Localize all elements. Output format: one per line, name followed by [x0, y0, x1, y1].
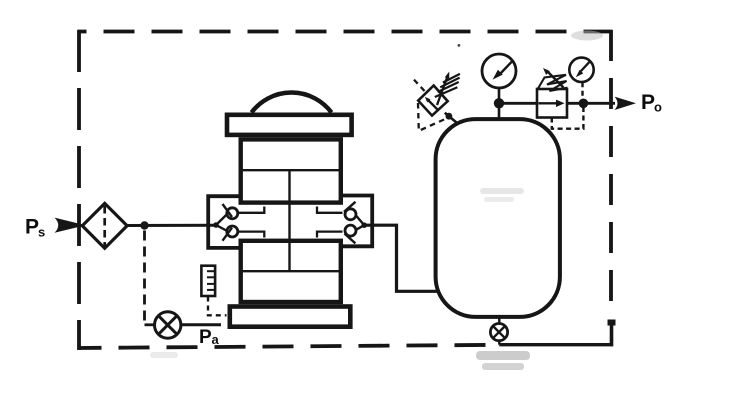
svg-text:P: P — [25, 216, 39, 239]
svg-text:P: P — [199, 327, 212, 348]
svg-text:P: P — [641, 91, 655, 114]
svg-text:a: a — [212, 332, 220, 347]
svg-text:s: s — [38, 225, 45, 240]
svg-text:o: o — [654, 100, 662, 115]
